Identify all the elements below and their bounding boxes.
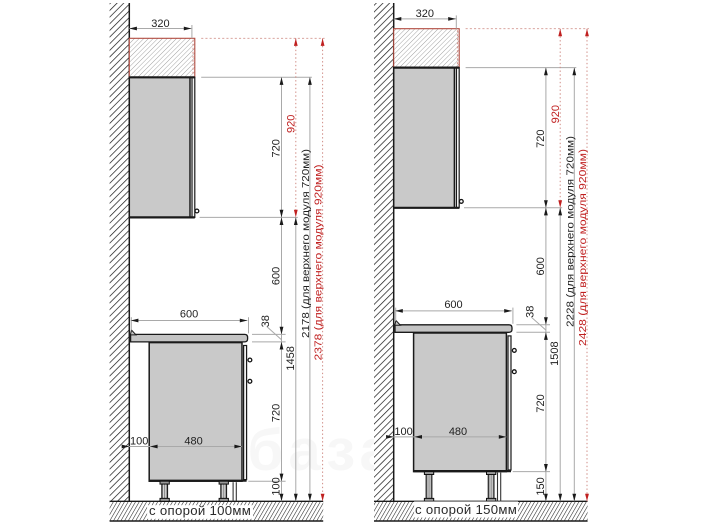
svg-text:920: 920 xyxy=(550,105,562,123)
svg-text:2178 (для верхнего модуля 720м: 2178 (для верхнего модуля 720мм) xyxy=(301,149,312,338)
svg-text:720: 720 xyxy=(271,404,283,422)
svg-text:1458: 1458 xyxy=(285,346,297,370)
svg-text:720: 720 xyxy=(535,130,547,148)
svg-text:600: 600 xyxy=(444,299,462,311)
svg-text:100: 100 xyxy=(271,477,283,495)
svg-text:150: 150 xyxy=(535,477,547,495)
svg-text:с опорой 100мм: с опорой 100мм xyxy=(149,503,251,518)
svg-text:100: 100 xyxy=(394,426,412,438)
svg-text:100: 100 xyxy=(130,435,148,447)
svg-text:38: 38 xyxy=(524,306,536,318)
svg-text:600: 600 xyxy=(535,257,547,275)
svg-text:с опорой 150мм: с опорой 150мм xyxy=(415,502,517,517)
svg-text:480: 480 xyxy=(184,435,202,447)
svg-text:2378 (для верхнего модуля 920м: 2378 (для верхнего модуля 920мм) xyxy=(314,165,325,361)
svg-text:480: 480 xyxy=(449,426,467,438)
svg-text:600: 600 xyxy=(271,267,283,285)
svg-text:920: 920 xyxy=(285,115,297,133)
svg-text:320: 320 xyxy=(151,18,169,30)
svg-text:320: 320 xyxy=(416,8,434,20)
svg-text:600: 600 xyxy=(180,309,198,321)
svg-text:720: 720 xyxy=(535,394,547,412)
svg-text:2428 (для верхнего модуля 920м: 2428 (для верхнего модуля 920мм) xyxy=(578,149,589,346)
svg-text:1508: 1508 xyxy=(549,341,561,365)
svg-text:2228 (для верхнего модуля 720м: 2228 (для верхнего модуля 720мм) xyxy=(565,136,576,327)
svg-text:720: 720 xyxy=(271,139,283,157)
svg-text:38: 38 xyxy=(260,315,272,327)
